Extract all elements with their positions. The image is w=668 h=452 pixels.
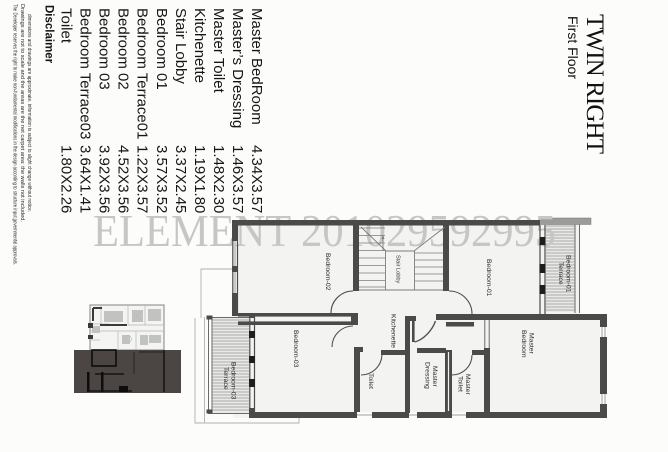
svg-text:Bedroom-03: Bedroom-03 <box>230 362 237 400</box>
svg-text:Master: Master <box>528 333 535 355</box>
svg-text:4.52X3.56: 4.52X3.56 <box>115 145 132 213</box>
svg-text:Drawings are not to scale and: Drawings are not to scale and the areas … <box>19 4 25 222</box>
svg-text:1.19X1.80: 1.19X1.80 <box>191 145 208 213</box>
svg-text:Bedroom 02: Bedroom 02 <box>115 8 132 90</box>
svg-text:1.22X3.57: 1.22X3.57 <box>134 145 151 213</box>
svg-text:Bedroom-01: Bedroom-01 <box>565 255 572 293</box>
svg-text:Master BedRoom: Master BedRoom <box>248 8 265 125</box>
svg-text:1.48X2.30: 1.48X2.30 <box>210 145 227 213</box>
svg-text:Bedroom-03: Bedroom-03 <box>292 330 299 368</box>
svg-text:4.34X3.57: 4.34X3.57 <box>248 145 265 213</box>
svg-text:Kitchenette: Kitchenette <box>191 8 208 83</box>
svg-text:3.37X2.45: 3.37X2.45 <box>172 145 189 213</box>
svg-text:Master’s Dressing: Master’s Dressing <box>229 8 246 128</box>
svg-text:The Developer reserves the rig: The Developer reserves the right to make… <box>12 4 18 265</box>
svg-text:1.80X2.26: 1.80X2.26 <box>58 145 75 213</box>
svg-text:3.64X1.41: 3.64X1.41 <box>77 145 94 213</box>
svg-text:Bedroom 03: Bedroom 03 <box>96 8 113 90</box>
svg-text:Toilet: Toilet <box>457 376 464 392</box>
svg-text:3.92X3.56: 3.92X3.56 <box>96 145 113 213</box>
svg-text:Dressing: Dressing <box>424 362 431 389</box>
svg-text:Bedroom: Bedroom <box>520 330 527 358</box>
svg-text:3.57X3.52: 3.57X3.52 <box>153 145 170 213</box>
svg-text:Bedroom Terrace01: Bedroom Terrace01 <box>134 8 151 139</box>
svg-text:Master: Master <box>464 374 471 396</box>
svg-text:Bedroom Terrace03: Bedroom Terrace03 <box>77 8 94 139</box>
svg-text:Master: Master <box>431 366 438 388</box>
svg-text:Stair Lobby: Stair Lobby <box>395 255 401 283</box>
svg-text:TWIN RIGHT: TWIN RIGHT <box>581 14 608 154</box>
svg-text:Terrace: Terrace <box>557 262 564 285</box>
svg-text:Toilet: Toilet <box>58 8 75 44</box>
svg-text:1.46X3.57: 1.46X3.57 <box>229 145 246 213</box>
svg-text:Bedroom 01: Bedroom 01 <box>153 8 170 90</box>
svg-text:Kitchenette: Kitchenette <box>390 314 397 348</box>
svg-text:Master Toilet: Master Toilet <box>210 8 227 94</box>
svg-text:First Floor: First Floor <box>565 16 581 79</box>
svg-text:Stair Lobby: Stair Lobby <box>172 8 189 84</box>
svg-text:Toilet: Toilet <box>367 373 374 389</box>
svg-text:Disclaimer: Disclaimer <box>43 5 55 64</box>
svg-text:Bedroom-01: Bedroom-01 <box>485 259 492 297</box>
svg-text:Bedroom-02: Bedroom-02 <box>324 253 331 291</box>
svg-text:Terrace: Terrace <box>222 367 229 390</box>
svg-text:dimensions and drawings are ap: dimensions and drawings are approximate.… <box>26 14 32 212</box>
